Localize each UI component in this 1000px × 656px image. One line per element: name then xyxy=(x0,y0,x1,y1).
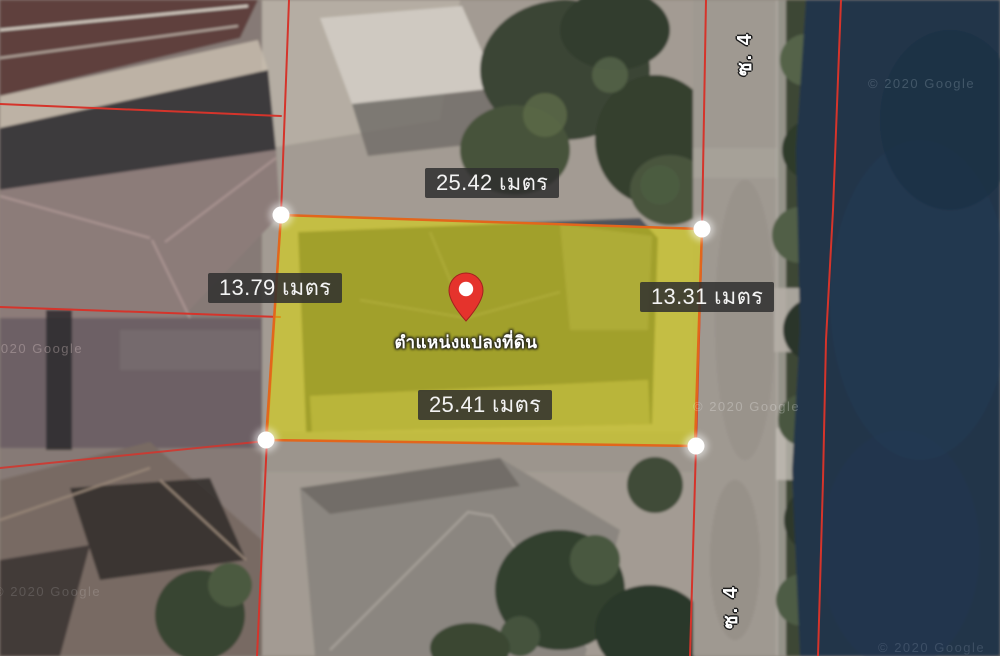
corner-marker-top-left xyxy=(273,207,290,224)
road-label-soi4-top: ซ. 4 xyxy=(728,32,760,76)
corner-marker-top-right xyxy=(694,221,711,238)
houses-left xyxy=(0,0,280,656)
road-label-soi4-bottom: ซ. 4 xyxy=(714,585,746,629)
map-copyright-watermark: © 2020 Google xyxy=(878,640,985,655)
measurement-label-right: 13.31 เมตร xyxy=(640,282,774,312)
plot-location-label: ตำแหน่งแปลงที่ดิน xyxy=(394,329,537,356)
satellite-map-canvas: 25.42 เมตร 13.79 เมตร 13.31 เมตร 25.41 เ… xyxy=(0,0,1000,656)
map-copyright-watermark: © 2020 Google xyxy=(868,76,975,91)
map-copyright-watermark: © 2020 Google xyxy=(0,584,101,599)
map-copyright-watermark: © 2020 Google xyxy=(693,399,800,414)
water-body xyxy=(792,0,1000,656)
satellite-base-image xyxy=(0,0,1000,656)
corner-marker-bottom-right xyxy=(688,438,705,455)
measurement-label-bottom: 25.41 เมตร xyxy=(418,390,552,420)
corner-marker-bottom-left xyxy=(258,432,275,449)
measurement-label-left: 13.79 เมตร xyxy=(208,273,342,303)
measurement-label-top: 25.42 เมตร xyxy=(425,168,559,198)
map-copyright-watermark: © 2020 Google xyxy=(0,341,83,356)
location-pin-icon xyxy=(447,272,485,322)
